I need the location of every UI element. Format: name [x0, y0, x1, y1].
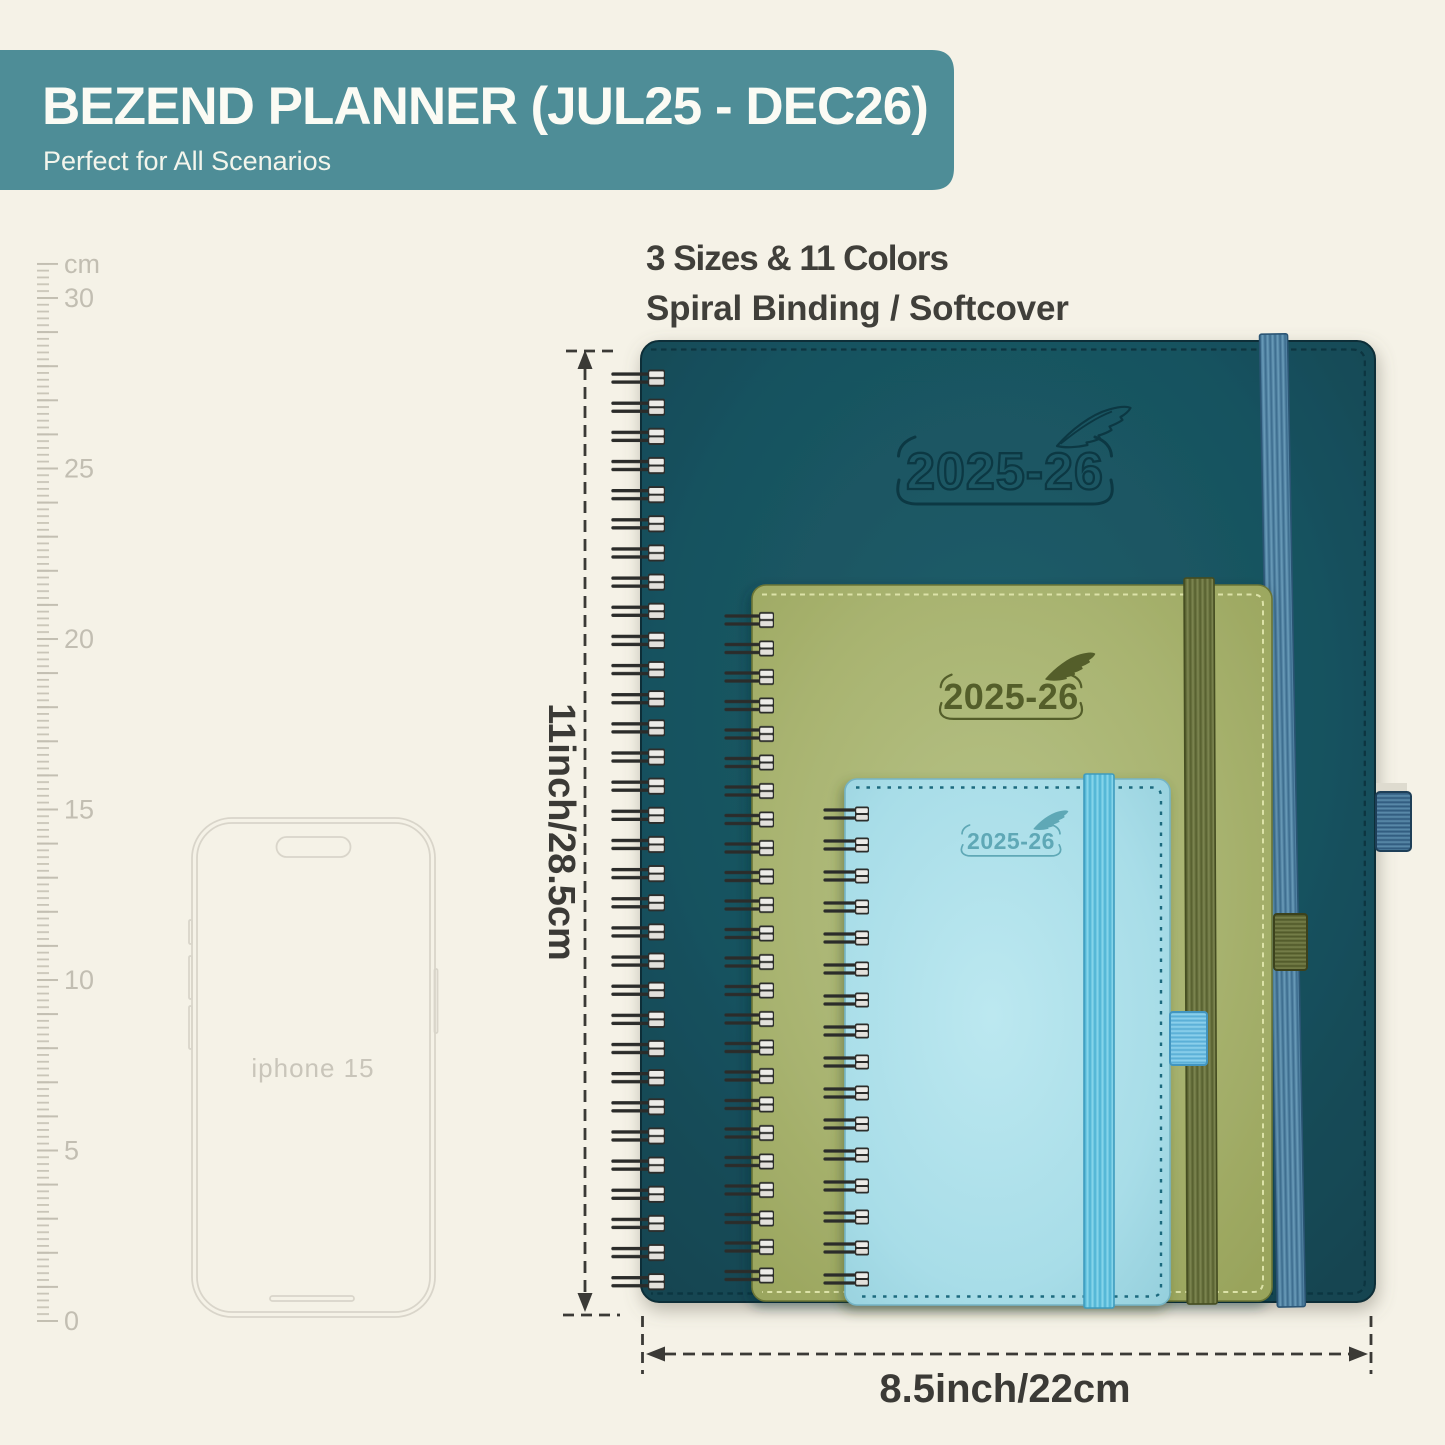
svg-text:0: 0 [64, 1306, 79, 1336]
svg-text:3 Sizes & 11 Colors: 3 Sizes & 11 Colors [646, 239, 949, 278]
svg-text:5: 5 [64, 1136, 79, 1166]
svg-text:15: 15 [64, 795, 94, 825]
svg-text:2025-26: 2025-26 [943, 676, 1079, 717]
svg-text:2025-26: 2025-26 [906, 443, 1104, 501]
svg-text:Spiral Binding / Softcover: Spiral Binding / Softcover [646, 289, 1069, 328]
svg-text:BEZEND PLANNER (JUL25 - DEC26): BEZEND PLANNER (JUL25 - DEC26) [42, 77, 928, 136]
svg-text:10: 10 [64, 965, 94, 995]
svg-text:25: 25 [64, 454, 94, 484]
svg-text:cm: cm [64, 249, 100, 279]
svg-text:Perfect for All Scenarios: Perfect for All Scenarios [43, 146, 331, 176]
svg-text:iphone 15: iphone 15 [251, 1053, 374, 1083]
svg-text:20: 20 [64, 624, 94, 654]
svg-text:2025-26: 2025-26 [967, 828, 1055, 854]
svg-text:11inch/28.5cm: 11inch/28.5cm [540, 703, 582, 961]
svg-text:8.5inch/22cm: 8.5inch/22cm [879, 1367, 1130, 1411]
svg-text:30: 30 [64, 283, 94, 313]
